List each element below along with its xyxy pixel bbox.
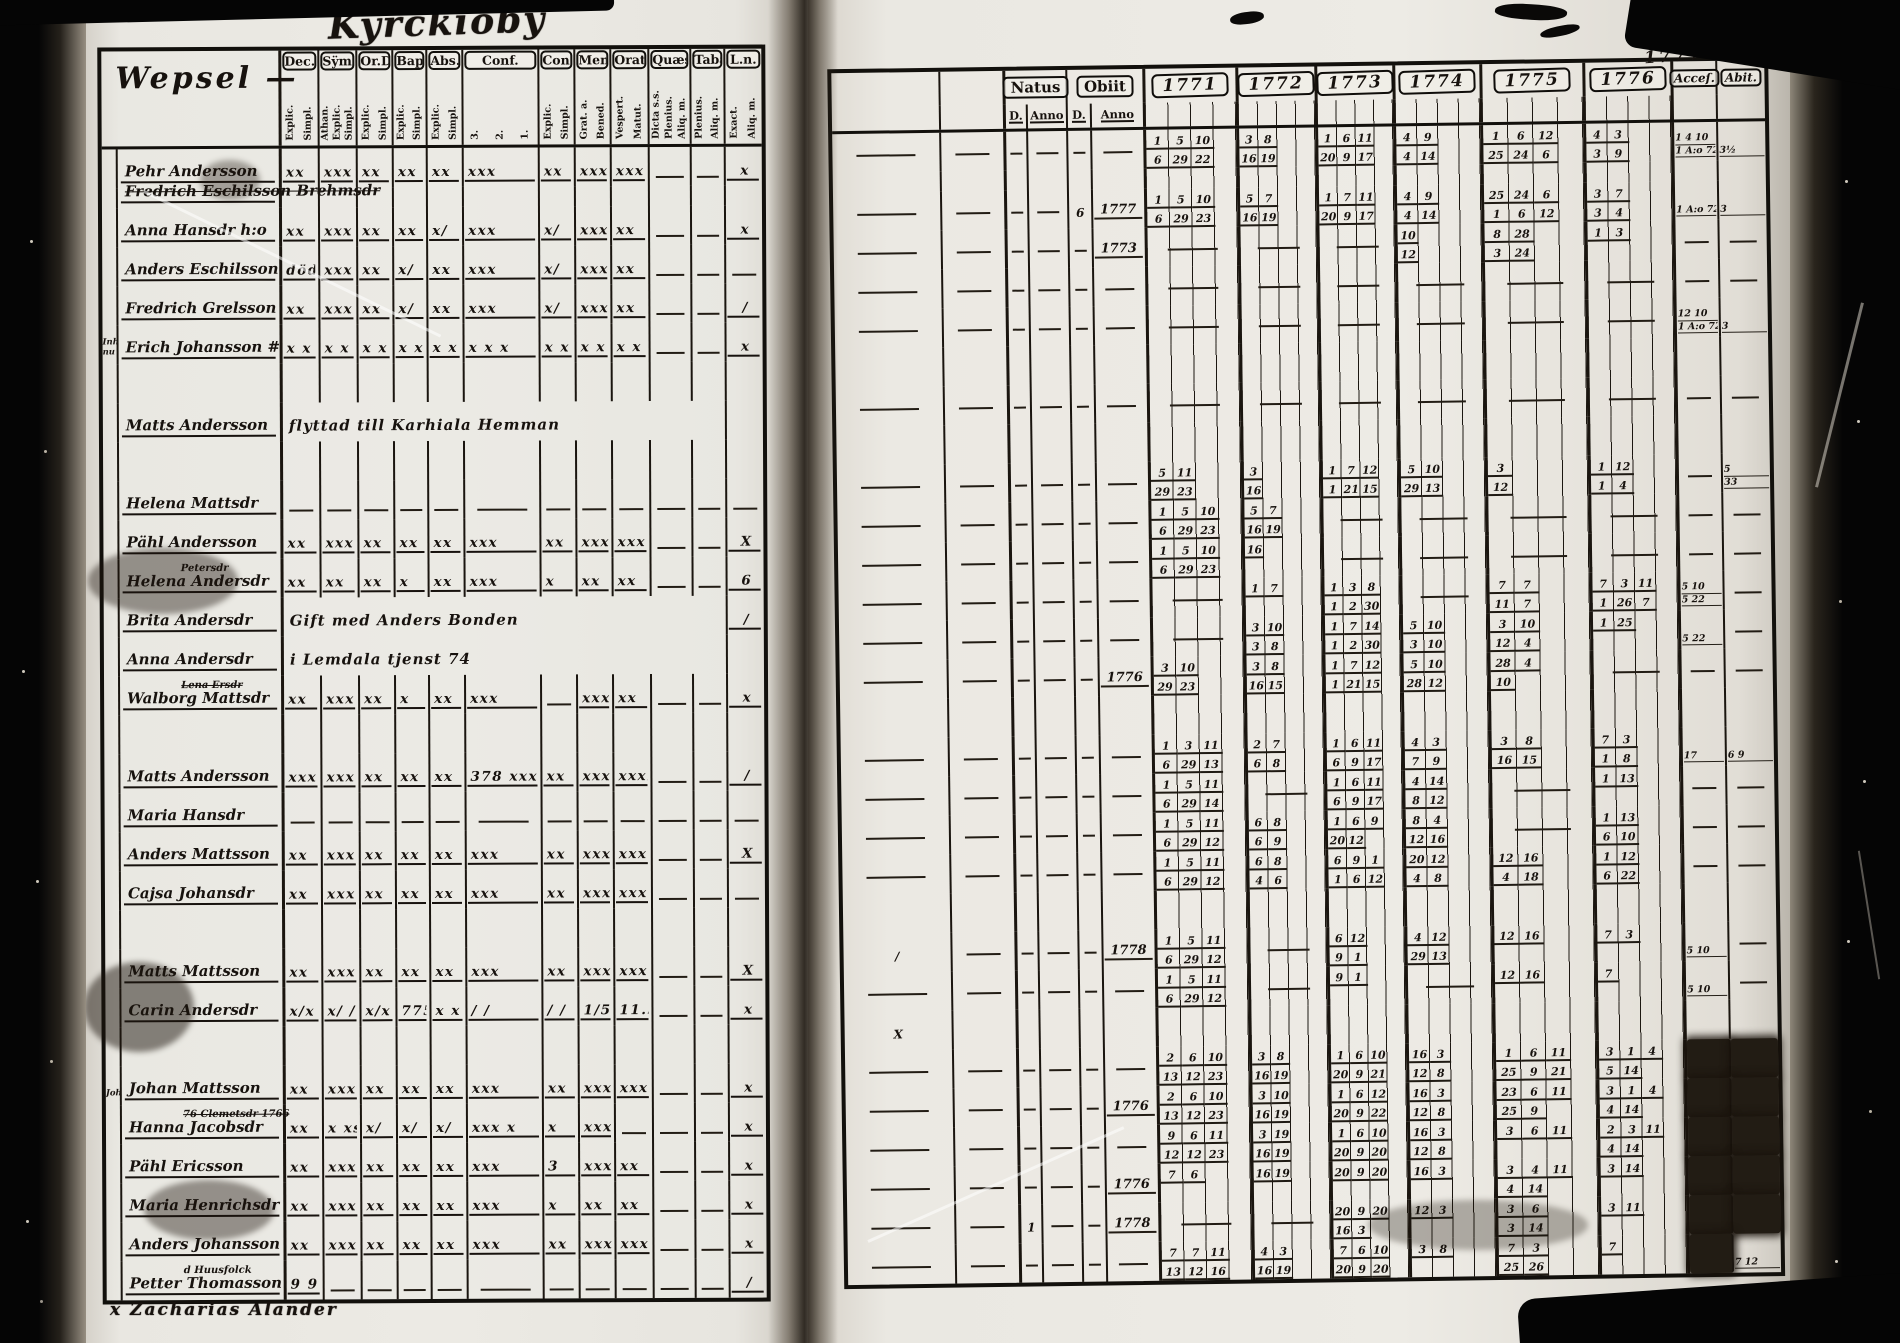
ln-mark: x (728, 340, 760, 357)
communion-marks: x/ (395, 264, 423, 281)
communion-marks: xx (544, 965, 574, 982)
empty-cell (614, 713, 652, 752)
year-cell: 4122913 (1407, 925, 1495, 965)
mark-cell: xxx (465, 519, 541, 558)
date-number: 12 (1202, 876, 1225, 890)
communion-marks: xxx (469, 1160, 539, 1177)
mark-cell: xx (398, 1143, 432, 1182)
mark-cell: xx (397, 870, 431, 909)
date-number: 8 (1266, 661, 1285, 675)
year-cell: 201248 (1406, 847, 1494, 887)
ln-mark-cell: x (730, 1103, 766, 1142)
ledger-row: Anders Eschilssondöd xxxxxxxx/xxxxxx/xxx… (102, 245, 762, 287)
year-cell: 2768 (1248, 732, 1328, 772)
year-subheader (1483, 97, 1586, 122)
date-number: 3 (1177, 740, 1200, 754)
date-number: 4 (1407, 873, 1428, 887)
date-number: 12 (1184, 1267, 1207, 1281)
year-cell (1494, 885, 1598, 925)
communion-marks: xxx (577, 165, 607, 182)
name-cell: Matts Andersson (119, 403, 283, 443)
mark-cell: xxx (468, 1182, 544, 1221)
date-number: 1 (1156, 818, 1179, 832)
column-sublabel: Athan. (320, 74, 330, 140)
date-line: 20917 (1319, 205, 1394, 226)
mark-cell (653, 986, 695, 1025)
column-header: Sÿmb.Athan.Explic.Simpl. (319, 50, 357, 145)
column-label: Orat. (612, 50, 646, 69)
mark-cell: x/ (540, 206, 576, 245)
date-number: 6 (1346, 816, 1365, 830)
acce-cell (1688, 1117, 1733, 1157)
communion-marks: xxx (468, 887, 538, 904)
date-number: 29 (1174, 526, 1197, 540)
year-cell: 310124 (1490, 612, 1594, 652)
acce-cell (1679, 493, 1724, 533)
date-line: 7711 (1162, 1240, 1252, 1261)
communion-marks: xx (545, 1082, 575, 1099)
year-cell (1495, 1002, 1599, 1042)
date-line: 1510 (1151, 500, 1241, 521)
mark-cell: xxx (616, 1064, 654, 1103)
date-line: 62913 (1155, 753, 1245, 774)
acce-entry: 5 10 (1687, 983, 1727, 996)
year-cell: 161120917 (1318, 126, 1397, 166)
year-cell: 151062923 (1152, 539, 1246, 579)
mark-cell: x x (282, 324, 320, 363)
date-number: 5 (1178, 818, 1201, 832)
mark-cell: xx (394, 207, 428, 246)
mark-cell (282, 187, 320, 207)
date-line: 20920 (1333, 1160, 1408, 1181)
empty-cell (542, 713, 578, 752)
mark-cell (615, 791, 653, 830)
scan-margin-right (1790, 0, 1900, 1343)
date-number: 10 (1205, 1091, 1228, 1105)
natus-anno-cell (1032, 424, 1073, 464)
natus-day-cell (1009, 346, 1032, 385)
mark-cell: xx (358, 207, 394, 246)
date-line: 20917 (1318, 146, 1393, 167)
communion-marks: x x x (466, 341, 536, 358)
date-line: 2913 (1401, 477, 1485, 498)
natus-anno-cell (1034, 541, 1075, 581)
abit-cell (1722, 414, 1770, 454)
empty-cell (465, 441, 541, 480)
mark-cell: xx (577, 557, 613, 596)
mark-cell: xx (395, 519, 429, 558)
communion-marks: xxx (617, 1082, 649, 1099)
obiit-anno-cell (1094, 267, 1149, 307)
date-line: 163 (1409, 1081, 1493, 1102)
mark-cell (652, 674, 694, 713)
abit-cell: 7 12 (1734, 1233, 1782, 1273)
empty-cell (284, 714, 322, 753)
date-number: 11 (1365, 777, 1384, 791)
date-number: 1 (1245, 583, 1264, 597)
year-cell: 161225246 (1483, 124, 1587, 164)
mark-cell: xx (398, 1065, 432, 1104)
date-number: 16 (1427, 834, 1448, 848)
date-number: 6 (1509, 209, 1534, 223)
year-cell (1322, 380, 1401, 420)
communion-marks: xxx (614, 536, 646, 553)
mark-cell: xxx (579, 830, 615, 869)
date-line: 310 (1252, 1083, 1328, 1104)
year-cell (1322, 419, 1401, 459)
date-line: 1216 (1493, 846, 1593, 867)
dust-specks (30, 240, 33, 243)
date-line: 27 (1248, 732, 1324, 753)
date-number: 19 (1258, 153, 1277, 167)
empty-cell (429, 363, 465, 402)
acce-label: Acceſ. (1669, 69, 1720, 88)
communion-marks: xxx (577, 263, 607, 280)
date-line: 310 (1403, 633, 1487, 654)
year-cell (1324, 536, 1403, 576)
date-number: 3 (1498, 1165, 1523, 1179)
date-line: 510 (1401, 457, 1485, 478)
ln-mark: x (730, 1003, 762, 1020)
mark-cell (612, 186, 650, 206)
mark-cell: xxx (467, 870, 543, 909)
communion-marks: xx (432, 848, 462, 865)
ln-mark-cell: X (729, 947, 765, 986)
communion-marks: x (397, 693, 425, 710)
empty-cell (322, 714, 360, 753)
margin-cell (947, 581, 1013, 621)
date-line: 46 (1249, 869, 1325, 890)
name-cell (121, 910, 285, 950)
year-cell: 163 (1411, 1159, 1499, 1199)
ledger-row (103, 362, 763, 404)
date-number: 8 (1258, 134, 1277, 148)
communion-marks: xx (433, 1082, 463, 1099)
communion-marks: xx (581, 1199, 611, 1216)
mark-cell (652, 752, 694, 791)
date-number: 3 (1621, 1124, 1642, 1138)
abit-cell (1719, 219, 1767, 259)
date-number: 12 (1398, 250, 1419, 264)
margin-cell (837, 504, 947, 545)
row-margin-note (106, 1144, 122, 1183)
column-label: Dec. (282, 52, 316, 71)
date-line: 113 (1595, 766, 1680, 787)
natus-anno-cell (1029, 229, 1070, 269)
obiit-day-cell (1079, 931, 1104, 970)
date-line: 77 (1489, 573, 1589, 594)
empty-cell (541, 440, 577, 479)
date-number: 9 (1347, 855, 1366, 869)
date-number: 4 (1641, 1046, 1662, 1060)
year-cell: 312 (1488, 456, 1592, 496)
natus-day-cell (1016, 853, 1039, 892)
mark-cell (692, 147, 726, 186)
date-number: 1 (1595, 773, 1616, 787)
date-line: 1511 (1158, 968, 1248, 989)
ln-mark-cell: x (730, 1064, 766, 1103)
communion-marks: x/ (363, 1122, 393, 1139)
empty-cell (652, 713, 694, 752)
year-cell: 1012 (1397, 223, 1485, 263)
date-number: 9 (1350, 1069, 1369, 1083)
date-number: 10 (1398, 230, 1419, 244)
acce-cell (1682, 688, 1727, 728)
date-line: 2012 (1328, 829, 1403, 850)
date-number: 12 (1490, 638, 1515, 652)
mark-cell: xx (541, 518, 577, 557)
margin-cell (945, 425, 1011, 465)
mark-cell: xxx (464, 285, 540, 324)
date-line: 18 (1595, 747, 1680, 768)
date-line: 1610 (1332, 1121, 1407, 1142)
mark-cell (469, 1260, 545, 1299)
communion-marks: xx (363, 1239, 393, 1256)
date-number: 5 (1599, 1066, 1620, 1080)
date-number: 12 (1183, 1150, 1206, 1164)
date-number: 6 (1534, 189, 1559, 203)
margin-cell (953, 1010, 1019, 1050)
column-sublabel: Aliq. m. (747, 73, 757, 139)
date-number: 18 (1519, 872, 1544, 886)
year-cell (1240, 166, 1319, 187)
date-number: 6 (1182, 1091, 1205, 1105)
column-label: Conf. (464, 51, 536, 70)
date-number: 8 (1616, 754, 1637, 768)
mark-cell (653, 869, 695, 908)
date-number: 19 (1272, 1129, 1291, 1143)
ln-mark-cell: x (730, 1142, 766, 1181)
date-line: 68 (1248, 752, 1324, 773)
column-label: Mens. (576, 50, 608, 69)
obiit-anno-cell (1101, 735, 1156, 775)
date-number: 1 (1156, 857, 1179, 871)
date-number: 4 (1255, 1246, 1274, 1260)
abit-cell (1730, 960, 1778, 1000)
mark-cell: xxx (322, 675, 360, 714)
communion-marks: xx (399, 1161, 427, 1178)
date-line: 414 (1397, 204, 1481, 225)
date-number: 1 (1593, 617, 1614, 631)
date-line: 10 (1491, 670, 1591, 691)
margin-cell (838, 543, 948, 584)
communion-marks: xxx (616, 965, 648, 982)
date-number: 7 (1263, 505, 1282, 519)
date-number: 16 (1240, 213, 1259, 227)
date-line (1597, 942, 1682, 963)
mark-cell: 9 9 (287, 1260, 325, 1299)
column-sublabels: Explic.Simpl. (357, 72, 391, 140)
mark-cell: x/ (540, 245, 576, 284)
communion-marks: xx (429, 165, 459, 182)
obiit-anno-cell (1097, 462, 1152, 502)
obiit-day-cell (1069, 170, 1093, 190)
mark-cell: xx (580, 1181, 616, 1220)
date-number: 3 (1599, 1046, 1620, 1060)
date-number: 10 (1192, 194, 1215, 208)
empty-cell (362, 1026, 398, 1065)
sub-label: D. (1009, 109, 1023, 124)
date-number: 14 (1426, 776, 1447, 790)
date-number: 6 (1350, 1089, 1369, 1103)
abit-cell (1729, 882, 1777, 922)
empty-cell (397, 909, 431, 948)
date-line: 124 (1490, 631, 1590, 652)
mark-cell: xx (394, 148, 428, 187)
name-cell: Matts Andersson (120, 754, 284, 794)
date-number: 6 (1533, 150, 1558, 164)
date-number: 1 (1325, 641, 1344, 655)
date-line: 131223 (1159, 1065, 1249, 1086)
mark-cell (654, 1064, 696, 1103)
date-number: 7 (1595, 734, 1616, 748)
date-line: 1612 (1484, 202, 1584, 223)
year-header: 1774 (1395, 64, 1482, 99)
year-cell (1148, 266, 1242, 306)
date-number: 16 (1410, 1127, 1431, 1141)
date-line: 1612 (1483, 124, 1583, 145)
mark-cell: xxx (577, 518, 613, 557)
ln-mark-cell: / (728, 752, 764, 791)
mark-cell: xxx (324, 1221, 362, 1260)
date-number: 7 (1608, 188, 1629, 202)
year-cell (1487, 417, 1591, 457)
date-number: 1 (1318, 133, 1337, 147)
date-line: 310 (1490, 612, 1590, 633)
date-number: 6 (1521, 1047, 1546, 1061)
date-number: 6 (1596, 832, 1617, 846)
acce-entry: 5 22 (1682, 593, 1722, 606)
date-number: 1 (1323, 465, 1342, 479)
mark-cell: xx (286, 1065, 324, 1104)
column-label: Quæst. (650, 50, 688, 69)
obiit-year: 1777 (1094, 203, 1142, 220)
mark-cell: xx (361, 948, 397, 987)
mark-cell (617, 1259, 655, 1298)
year-cell: 381619 (1252, 1044, 1332, 1084)
ln-mark: x (731, 1198, 763, 1215)
mark-cell: xxx (324, 1065, 362, 1104)
acce-cell (1690, 1234, 1735, 1274)
date-line: 131223 (1160, 1104, 1250, 1125)
date-number: 5 (1178, 779, 1201, 793)
column-header: Tabac.Plenius.Aliq. m. (691, 49, 725, 144)
abit-cell (1725, 609, 1773, 649)
year-cell: 7 (1602, 1234, 1691, 1274)
mark-cell: xx (616, 1181, 654, 1220)
obiit-anno-cell: 1777 (1093, 189, 1148, 229)
date-number: 10 (1371, 1245, 1390, 1259)
obiit-anno-cell (1102, 813, 1157, 853)
ln-mark-cell: / (726, 284, 762, 323)
column-header: Orat.Vespert.Matut. (611, 49, 649, 144)
date-number: 14 (1622, 1143, 1643, 1157)
natus-day-cell (1008, 268, 1031, 307)
year-cell (1402, 535, 1490, 575)
date-number: 25 (1614, 617, 1635, 631)
communion-marks: xx (363, 1083, 393, 1100)
row-margin-note (104, 754, 120, 793)
mark-cell: xx (432, 1065, 468, 1104)
date-line (1411, 1179, 1495, 1200)
date-number: 7 (1515, 599, 1540, 613)
date-line: 418 (1493, 865, 1593, 886)
empty-cell (466, 714, 542, 753)
date-number: 1 (1324, 582, 1343, 596)
communion-marks: xxx (581, 1238, 611, 1255)
margin-cell (947, 542, 1013, 582)
mark-cell (692, 186, 726, 206)
abit-entry: 5 (1724, 463, 1769, 476)
date-number: 8 (1265, 641, 1284, 655)
date-number: 1 (1151, 506, 1174, 520)
date-number: 3 (1244, 466, 1263, 480)
column-sublabel: Explic. (332, 74, 342, 140)
obiit-anno-cell: 1776 (1105, 1086, 1160, 1126)
year-cell (1404, 691, 1492, 731)
obiit-day-cell (1071, 307, 1096, 346)
communion-marks: xxx (581, 1082, 611, 1099)
margin-cell (949, 698, 1015, 738)
date-number: 6 (1269, 875, 1288, 889)
date-number: 20 (1371, 1264, 1390, 1278)
date-number: 5 (1403, 620, 1424, 634)
date-number: 9 (1337, 152, 1356, 166)
mark-cell: xx (283, 558, 321, 597)
year-label: 1773 (1316, 70, 1394, 96)
ink-smudge (144, 1180, 274, 1240)
date-line: 412 (1407, 925, 1491, 946)
date-line: 12 (1398, 243, 1482, 264)
communion-marks: xx (361, 771, 391, 788)
date-line: 128 (1410, 1140, 1494, 1161)
margin-cell (954, 1088, 1020, 1128)
date-number: 1 (1484, 209, 1509, 223)
acce-cell (1688, 1156, 1733, 1196)
mark-cell: xx (540, 147, 576, 186)
acce-entry: 5 22 (1682, 632, 1722, 645)
communion-marks: x xs (325, 1122, 357, 1139)
date-number: 7 (1334, 1245, 1353, 1259)
year-cell (1408, 1003, 1496, 1043)
empty-cell (694, 713, 728, 752)
obiit-day-cell (1068, 131, 1093, 170)
date-number: 20 (1331, 1070, 1350, 1084)
ln-mark-cell: x (730, 1220, 766, 1259)
name-cell: d HuusfolckPetter Thomasson (123, 1261, 287, 1301)
date-number: 24 (1509, 189, 1534, 203)
acce-cell (1684, 844, 1729, 884)
date-number: 7 (1405, 756, 1426, 770)
acce-cell (1675, 220, 1720, 260)
date-line: 1619 (1240, 206, 1316, 227)
natus-anno-cell (1044, 1243, 1085, 1283)
obiit-year: 1776 (1107, 1100, 1155, 1117)
year-cell: 2610131223 (1159, 1084, 1253, 1124)
ln-mark: X (730, 964, 762, 981)
date-line: 62912 (1156, 870, 1246, 891)
date-number: 3 (1490, 619, 1515, 633)
date-number: 20 (1332, 1148, 1351, 1162)
date-number: 3 (1485, 248, 1510, 262)
year-cell: 6911612 (1328, 848, 1407, 888)
date-line: 163 (1411, 1159, 1495, 1180)
date-number: 4 (1405, 737, 1426, 751)
ink-smudge (88, 548, 238, 614)
mark-cell: xx (286, 1182, 324, 1221)
ln-mark-cell: x (726, 323, 762, 362)
mark-cell: xx (360, 753, 396, 792)
